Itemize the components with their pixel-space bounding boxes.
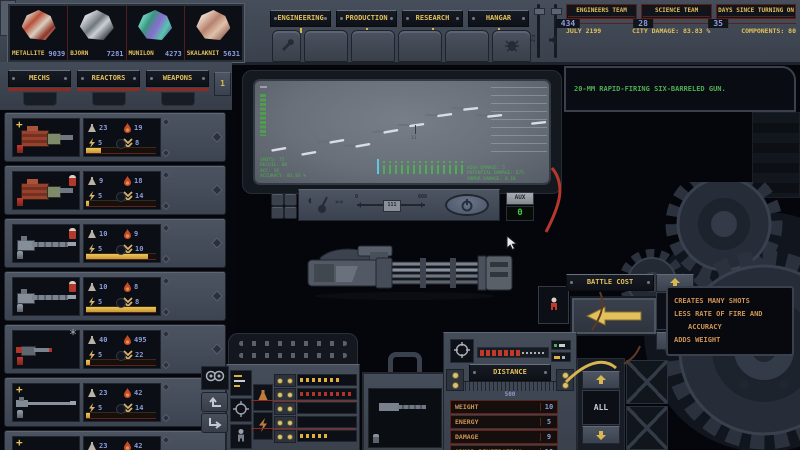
counter-box: ENGINEERS TEAM 434 — [566, 4, 637, 19]
rivet-row — [239, 341, 347, 346]
filter-all-button[interactable]: ALL — [582, 390, 620, 425]
charge-dots — [300, 434, 330, 438]
stat-value: 10 — [540, 403, 557, 411]
weapon-mount-icon — [17, 357, 23, 365]
resource-value: 7281 — [107, 50, 124, 58]
weapon-stat-table: WEIGHT 10 ENERGY 5 DAMAGE 9 ARMOR PENETR… — [450, 400, 558, 450]
weight-icon — [87, 441, 97, 450]
energy-value: 5 — [98, 139, 102, 147]
penetration-value: 14 — [135, 192, 143, 200]
weight-value: 10 — [99, 230, 107, 238]
tab-label: HANGAR — [486, 14, 511, 22]
weight-icon — [87, 176, 97, 186]
goggles-icon — [205, 370, 225, 384]
wrench-key[interactable] — [272, 30, 301, 62]
equip-weapon-button[interactable] — [570, 296, 658, 336]
weight-value: 23 — [99, 124, 107, 132]
energy-bolt-icon — [257, 418, 269, 432]
category-tab[interactable]: REACTORS — [77, 70, 140, 106]
weapon-traits-panel: CREATES MANY SHOTSLESS RATE OF FIRE ANDA… — [666, 286, 794, 356]
cross-brace-panel — [626, 360, 668, 404]
weight-icon — [87, 388, 97, 398]
audio-sliders: ♫ — [528, 2, 568, 60]
row-knob[interactable] — [116, 404, 126, 414]
weapon-list-item[interactable]: 40 495 5 22 — [4, 324, 226, 374]
row-knob[interactable] — [116, 351, 126, 361]
enemy-key[interactable] — [492, 30, 531, 62]
penetration-value: 10 — [135, 245, 143, 253]
weight-icon — [87, 123, 97, 133]
tab-label: PRODUCTION — [345, 14, 387, 22]
resource-item: MUNILON 4273 — [127, 6, 185, 60]
city-damage-label: CITY DAMAGE: 83.83 % — [632, 27, 710, 35]
pilot-figure-icon — [373, 434, 379, 443]
energy-value: 5 — [98, 298, 102, 306]
damage-value: 18 — [134, 177, 142, 185]
weapon-marker-icon — [16, 438, 23, 448]
scope-button[interactable] — [230, 398, 252, 422]
filter-strip: ALL — [577, 358, 625, 450]
wrench-icon — [279, 37, 295, 53]
weapon-marker-icon — [69, 228, 76, 239]
fire-mode-key[interactable] — [284, 193, 297, 206]
weapon-stats-box: 9 18 5 14 — [83, 171, 161, 210]
counter-value: 35 — [708, 19, 728, 28]
damage-flame-icon — [123, 282, 132, 292]
weapon-mount-icon — [17, 304, 23, 312]
row-screw — [211, 343, 222, 354]
fire-mode-key[interactable] — [271, 206, 284, 219]
energy-value: 5 — [98, 404, 102, 412]
weapon-list-item[interactable]: 10 8 5 8 — [4, 271, 226, 321]
tab-handle[interactable] — [161, 92, 195, 106]
aim-marker-value: 11 — [411, 136, 416, 141]
indicator-box — [551, 352, 571, 362]
distance-ruler[interactable] — [453, 381, 565, 391]
weight-value: 9 — [99, 177, 103, 185]
load-weapon-button[interactable] — [201, 392, 228, 412]
unload-weapon-button[interactable] — [201, 413, 228, 433]
resource-item: METALLITE 9039 — [10, 6, 68, 60]
row-screw — [162, 224, 170, 232]
tab-label: REACTORS — [92, 74, 126, 82]
power-button[interactable] — [445, 194, 489, 216]
ammo-progress-fill — [86, 201, 89, 206]
row-screw — [162, 149, 170, 157]
damage-value: 42 — [134, 389, 142, 397]
screen-readout-left: SHOTS: 75RECOIL: 80ACC: 10ACCURACY: 83.8… — [260, 141, 306, 180]
weapon-list-item[interactable]: 10 9 5 10 — [4, 218, 226, 268]
weight-filter-button[interactable] — [253, 384, 273, 411]
trait-line: LESS RATE OF FIRE AND — [674, 308, 786, 321]
row-knob[interactable] — [116, 298, 126, 308]
damage-value: 9 — [134, 230, 138, 238]
weapon-stats-box: 40 495 5 22 — [83, 330, 161, 369]
stats-panel: DISTANCE 500 WEIGHT 10 ENERGY 5 DAMAGE 9 — [443, 332, 577, 450]
tab-label: MECHS — [29, 74, 50, 82]
damage-flame-icon — [123, 335, 132, 345]
console-key[interactable] — [398, 30, 442, 62]
energy-value: 5 — [98, 245, 102, 253]
counter-label: ENGINEERS TEAM — [568, 6, 635, 17]
speaker-icon — [548, 35, 559, 45]
damage-flame-icon — [123, 176, 132, 186]
weight-value: 10 — [99, 283, 107, 291]
case-window — [368, 388, 442, 448]
terminal-pair — [274, 374, 296, 387]
weight-value: 23 — [99, 389, 107, 397]
date-label: JULY 2199 — [566, 27, 601, 35]
weapon-list: 23 19 5 8 — [4, 112, 226, 450]
distance-plate: DISTANCE — [469, 364, 551, 381]
category-tab[interactable]: WEAPONS — [146, 70, 209, 106]
weapon-image-box — [12, 436, 80, 450]
counter-label: DAYS SINCE TURNING ON — [718, 6, 794, 17]
resource-item: SKALAKNIT 5631 — [185, 6, 242, 60]
weapon-stats-box: 23 19 5 8 — [83, 118, 161, 157]
pilot-figure-icon — [235, 428, 247, 443]
row-screw — [162, 277, 170, 285]
terminal-pair — [274, 402, 296, 415]
assembler-panel — [226, 364, 360, 450]
resource-item: BJORN 7281 — [68, 6, 126, 60]
weapon-list-item[interactable]: 23 19 5 8 — [4, 112, 226, 162]
resource-name: SKALAKNIT — [187, 50, 220, 58]
mod-slot[interactable] — [297, 388, 357, 400]
penetration-value: 22 — [135, 351, 143, 359]
tab-handle[interactable] — [92, 92, 126, 106]
pilot-slot[interactable] — [538, 286, 569, 324]
cased-gun-barrel — [398, 405, 426, 409]
distance-value: 500 — [444, 391, 576, 398]
stat-label: WEIGHT — [451, 403, 540, 411]
stat-row: ARMOR PENETRATION 10 — [450, 445, 558, 450]
weapon-marker-icon — [69, 281, 76, 292]
stat-value: 9 — [540, 433, 557, 441]
mouse-cursor — [506, 236, 520, 252]
mineral-icon — [138, 10, 172, 40]
indicator-box — [230, 370, 252, 396]
divider-line — [251, 400, 355, 401]
weapon-image-box — [12, 330, 80, 369]
aim-marker — [415, 125, 416, 134]
power-icon — [459, 197, 475, 213]
trait-line: CREATES MANY SHOTS — [674, 295, 786, 308]
damage-flame-icon — [123, 229, 132, 239]
console-key[interactable] — [445, 30, 489, 62]
weapon-marker-icon — [69, 175, 76, 186]
tab-label: RESEARCH — [416, 14, 450, 22]
resources-panel: METALLITE 9039 BJORN 7281 MUNILON 4273 — [8, 4, 244, 62]
damage-value: 19 — [134, 124, 142, 132]
battle-cost-plate: BATTLE COST — [566, 274, 654, 291]
components-label: COMPONENTS: 80 — [741, 27, 796, 35]
music-slider-knob[interactable] — [534, 8, 545, 15]
cross-brace-panel — [626, 406, 668, 450]
ammo-progress-fill — [86, 148, 101, 153]
mineral-icon — [196, 10, 230, 40]
trait-line: ADDS WEIGHT — [674, 334, 786, 347]
crescent-icon: ◖ — [307, 196, 312, 206]
row-screw — [162, 171, 170, 179]
terminal-pair — [274, 430, 296, 443]
range-slider[interactable]: 0 600 111 — [355, 194, 427, 216]
range-handle[interactable]: 111 — [383, 200, 401, 212]
category-tab[interactable]: MECHS — [8, 70, 71, 106]
weapon-marker-icon — [69, 330, 77, 342]
row-screw — [162, 436, 170, 444]
stat-label: DAMAGE — [451, 433, 540, 441]
trait-line: ACCURACY — [674, 321, 786, 334]
divider-line — [251, 428, 355, 429]
weapon-mount-icon — [17, 251, 23, 259]
row-screw — [162, 202, 170, 210]
weapon-list-item[interactable]: 23 42 5 14 — [4, 377, 226, 427]
weapon-list-item[interactable]: 23 42 5 14 — [4, 430, 226, 450]
row-screw — [211, 184, 222, 195]
rivet-row — [239, 353, 347, 358]
range-max-label: 600 — [418, 194, 427, 200]
counter-box: SCIENCE TEAM 28 — [641, 4, 712, 19]
resource-name: MUNILON — [129, 50, 154, 58]
weapon-description-panel: 20-MM RAPID-FIRING SIX-BARRELED GUN. — [564, 66, 796, 112]
energy-filter-button[interactable] — [253, 412, 273, 440]
arrow-up-icon — [592, 373, 610, 387]
resource-value: 5631 — [223, 50, 240, 58]
damage-flame-icon — [123, 441, 132, 450]
weapon-image-box — [12, 277, 80, 316]
charge-dots — [300, 392, 354, 396]
weapon-description-text: 20-MM RAPID-FIRING SIX-BARRELED GUN. — [574, 85, 726, 93]
tab-underline — [8, 88, 71, 91]
tab-handle[interactable] — [23, 92, 57, 106]
bug-icon — [503, 37, 521, 53]
penetration-value: 8 — [135, 139, 139, 147]
sound-slider-knob[interactable] — [551, 8, 562, 15]
weight-icon — [87, 229, 97, 239]
weight-value: 40 — [99, 336, 107, 344]
scope-button[interactable] — [450, 339, 474, 363]
shot-dots — [383, 161, 467, 163]
left-tab-bar: MECHS REACTORS WEAPONS — [8, 70, 209, 106]
return-up-arrow-icon — [206, 394, 224, 410]
row-screw — [162, 414, 170, 422]
readout-line: ACCURACY: 83.83 % — [260, 174, 306, 180]
weapon-stats-box: 10 8 5 8 — [83, 277, 161, 316]
pilot-button[interactable] — [230, 424, 252, 449]
tab-underline — [146, 88, 209, 91]
music-note-icon: ♫ — [530, 34, 535, 44]
tab-label: WEAPONS — [163, 74, 193, 82]
team-counters: ENGINEERS TEAM 434 SCIENCE TEAM 28 DAYS … — [566, 4, 796, 19]
battle-cost-label: BATTLE COST — [587, 278, 633, 286]
aux-label: AUX — [506, 192, 534, 205]
mod-slot[interactable] — [297, 374, 357, 386]
ammo-progress-fill — [86, 413, 90, 418]
energy-value: 5 — [98, 192, 102, 200]
fire-mode-key[interactable] — [271, 193, 284, 206]
weapon-stats-box: 10 9 5 10 — [83, 224, 161, 263]
shot-ticks — [383, 165, 467, 174]
burst-icon: »« — [335, 198, 343, 206]
branch-right-arrow-icon — [206, 415, 224, 431]
console-key[interactable] — [304, 30, 348, 62]
resource-name: BJORN — [70, 50, 88, 58]
weapon-list-item[interactable]: 9 18 5 14 — [4, 165, 226, 215]
readout-line: ARMOR DAMAGE: 0.10 — [467, 177, 524, 183]
crosshair-icon — [233, 401, 249, 417]
counter-value: 434 — [556, 19, 580, 28]
row-screw — [211, 131, 222, 142]
row-screw — [162, 255, 170, 263]
weapon-marker-icon — [16, 385, 23, 395]
row-screw — [211, 290, 222, 301]
row-knob[interactable] — [116, 139, 126, 149]
stat-value: 5 — [540, 418, 557, 426]
cased-gun-body — [379, 403, 399, 411]
weapon-stats-box: 23 42 5 14 — [83, 383, 161, 422]
weapon-mount-icon — [17, 198, 23, 206]
crosshair-icon — [454, 342, 470, 358]
weapon-mount-icon — [17, 145, 23, 153]
weight-value: 23 — [99, 442, 107, 450]
row-knob[interactable] — [116, 245, 126, 255]
targeting-screen: 11 SHOTS: 75RECOIL: 80ACC: 10ACCURACY: 8… — [253, 79, 551, 185]
console-key-row — [272, 30, 531, 62]
weapon-image-box — [12, 171, 80, 210]
weapon-stats-box: 23 42 5 14 — [83, 436, 161, 450]
row-screw — [162, 118, 170, 126]
counter-value: 28 — [633, 19, 653, 28]
energy-value: 5 — [98, 351, 102, 359]
minigun-preview — [300, 240, 520, 304]
tab-label: ENGINEERING — [277, 14, 323, 22]
pendulum-knob-icon[interactable] — [317, 196, 331, 214]
stat-row: ENERGY 5 — [450, 415, 558, 429]
tab-underline — [77, 88, 140, 91]
arrow-left-icon — [583, 305, 645, 327]
row-screw — [211, 237, 222, 248]
console-key[interactable] — [351, 30, 395, 62]
resource-name: METALLITE — [12, 50, 45, 58]
stat-row: DAMAGE 9 — [450, 430, 558, 444]
indicator-box — [551, 340, 571, 350]
row-screw — [162, 383, 170, 391]
weight-icon — [87, 282, 97, 292]
weight-icon — [87, 335, 97, 345]
range-min-label: 0 — [355, 194, 358, 200]
readout-line: POTENTIAL DAMAGE: 675 — [467, 171, 524, 177]
ruler-knobs[interactable] — [556, 369, 574, 391]
assembler-lid — [228, 333, 358, 367]
inspect-button[interactable] — [201, 366, 229, 390]
row-screw — [162, 361, 170, 369]
row-knob[interactable] — [116, 192, 126, 202]
filter-up-button[interactable] — [582, 371, 620, 389]
weapon-image-box — [12, 118, 80, 157]
damage-value: 8 — [134, 283, 138, 291]
stat-label: ENERGY — [451, 418, 540, 426]
damage-value: 42 — [134, 442, 142, 450]
heat-gauge — [477, 347, 549, 358]
status-panel: ENGINEERS TEAM 434 SCIENCE TEAM 28 DAYS … — [566, 4, 796, 60]
weapon-marker-icon — [16, 120, 23, 130]
penetration-value: 14 — [135, 404, 143, 412]
ruler-knobs[interactable] — [446, 369, 464, 391]
counter-label: SCIENCE TEAM — [643, 6, 710, 17]
ammo-progress-fill — [86, 254, 148, 259]
ammo-progress-fill — [86, 360, 90, 365]
resource-value: 9039 — [48, 50, 65, 58]
mineral-icon — [80, 10, 114, 40]
filter-down-button[interactable] — [582, 426, 620, 444]
resource-value: 4273 — [165, 50, 182, 58]
damage-flame-icon — [123, 388, 132, 398]
weapon-mount-icon — [17, 410, 23, 418]
test-control-panel: ◖ »« 0 600 111 — [298, 189, 500, 221]
counter-box: DAYS SINCE TURNING ON 35 — [716, 4, 796, 19]
arrow-down-icon — [592, 428, 610, 442]
damage-value: 495 — [134, 336, 147, 344]
distance-label: DISTANCE — [493, 368, 527, 376]
mod-slot[interactable] — [297, 402, 357, 414]
penetration-value: 8 — [135, 298, 139, 306]
weapon-image-box — [12, 224, 80, 263]
pilot-icon — [547, 296, 561, 312]
row-screw — [162, 330, 170, 338]
fire-mode-key[interactable] — [284, 206, 297, 219]
mech-workshop-screen: METALLITE 9039 BJORN 7281 MUNILON 4273 — [0, 0, 800, 450]
mod-slot[interactable] — [297, 416, 357, 428]
screen-readout-right: HIGH DAMAGE: 5POTENTIAL DAMAGE: 675ARMOR… — [467, 149, 524, 182]
row-screw — [162, 308, 170, 316]
status-line: JULY 2199 CITY DAMAGE: 83.83 % COMPONENT… — [566, 23, 796, 35]
mineral-icon — [22, 10, 56, 40]
page-badge: 1 — [214, 72, 231, 96]
mod-slot[interactable] — [297, 430, 357, 442]
shot-tick-highlight — [377, 159, 379, 174]
weapon-image-box — [12, 383, 80, 422]
aux-display: 0 — [506, 206, 534, 221]
charge-dots — [300, 378, 342, 382]
stat-row: WEIGHT 10 — [450, 400, 558, 414]
damage-flame-icon — [123, 123, 132, 133]
